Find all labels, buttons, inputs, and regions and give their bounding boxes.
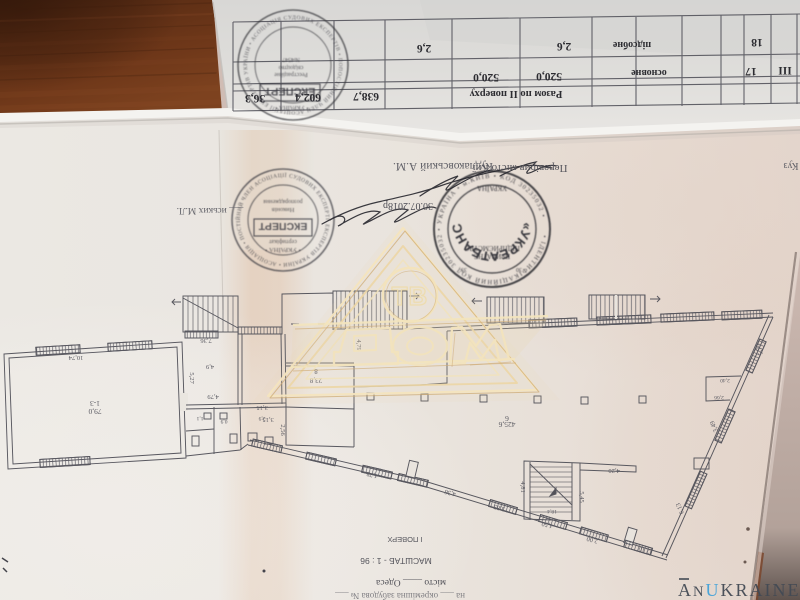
svg-text:4,20: 4,20 bbox=[608, 467, 619, 474]
svg-text:основне: основне bbox=[631, 67, 667, 78]
svg-text:4,79: 4,79 bbox=[207, 393, 218, 400]
svg-text:• УКРАЇНА •: • УКРАЇНА • bbox=[275, 104, 308, 111]
svg-text:Перевірив місто Киї: Перевірив місто Киї bbox=[472, 162, 568, 174]
svg-text:ПІДПРИЄМСТВО: ПІДПРИЄМСТВО bbox=[464, 244, 520, 252]
svg-text:2,9: 2,9 bbox=[258, 415, 265, 421]
svg-text:2,6: 2,6 bbox=[417, 42, 432, 54]
svg-text:638,7: 638,7 bbox=[353, 90, 379, 102]
svg-text:УКРАЇНА: УКРАЇНА bbox=[477, 184, 507, 192]
svg-text:підсобне: підсобне bbox=[612, 39, 651, 50]
svg-text:№4547: №4547 bbox=[282, 56, 300, 62]
svg-text:___ иських М.Л.: ___ иських М.Л. bbox=[177, 205, 245, 215]
svg-text:2,6: 2,6 bbox=[557, 40, 572, 52]
svg-text:7,36: 7,36 bbox=[200, 337, 212, 344]
svg-text:свідоцтво: свідоцтво bbox=[279, 64, 304, 70]
svg-text:ЕКСПЕРТ: ЕКСПЕРТ bbox=[264, 85, 315, 97]
svg-text:4,81: 4,81 bbox=[519, 481, 526, 492]
svg-text:1-3: 1-3 bbox=[90, 399, 100, 408]
svg-text:розпорядження: розпорядження bbox=[263, 198, 303, 204]
svg-text:17: 17 bbox=[745, 65, 757, 77]
svg-text:520,0: 520,0 bbox=[536, 70, 562, 82]
svg-text:1,1: 1,1 bbox=[196, 415, 203, 421]
svg-text:5,27: 5,27 bbox=[188, 372, 195, 384]
svg-text:МАСШТАБ - 1 : 96: МАСШТАБ - 1 : 96 bbox=[360, 556, 432, 566]
svg-text:2,56: 2,56 bbox=[279, 424, 286, 436]
svg-text:30.07.2018р: 30.07.2018р bbox=[383, 200, 433, 211]
svg-text:35: 35 bbox=[461, 266, 467, 272]
svg-text:III: III bbox=[778, 64, 792, 76]
svg-text:4,9: 4,9 bbox=[206, 363, 214, 370]
svg-text:5,45: 5,45 bbox=[578, 491, 585, 502]
svg-text:Куз: Куз bbox=[784, 160, 799, 171]
svg-text:ПРИВАТНЕ: ПРИВАТНЕ bbox=[474, 252, 510, 260]
svg-text:І ПОВЕРХ: І ПОВЕРХ bbox=[387, 535, 422, 544]
svg-text:30: 30 bbox=[516, 266, 522, 272]
svg-text:425,6: 425,6 bbox=[498, 420, 515, 429]
svg-text:10,74: 10,74 bbox=[68, 354, 83, 361]
svg-text:3,15: 3,15 bbox=[256, 404, 267, 411]
svg-text:ЕКСПЕРТ: ЕКСПЕРТ bbox=[258, 220, 307, 232]
svg-text:Никонів: Никонів bbox=[272, 206, 295, 213]
svg-text:місто ____ Одеса: місто ____ Одеса bbox=[375, 577, 446, 587]
svg-text:Реєстраційне: Реєстраційне bbox=[274, 71, 308, 78]
svg-text:18,4: 18,4 bbox=[547, 508, 557, 514]
svg-text:79,0: 79,0 bbox=[88, 407, 101, 416]
svg-text:2,40: 2,40 bbox=[720, 377, 730, 383]
svg-text:520,0: 520,0 bbox=[473, 71, 499, 83]
svg-text:ТВ: ТВ bbox=[392, 281, 429, 311]
svg-text:0,9: 0,9 bbox=[220, 418, 227, 424]
svg-text:• УКРАЇНА •: • УКРАЇНА • bbox=[265, 246, 301, 253]
svg-text:Разом по II поверху: Разом по II поверху bbox=[469, 88, 562, 99]
svg-text:2,66: 2,66 bbox=[714, 394, 724, 400]
svg-text:18: 18 bbox=[751, 36, 763, 48]
svg-text:на ___ окремішна забудова № __: на ___ окремішна забудова № ___ bbox=[335, 591, 465, 600]
svg-text:сертифікат: сертифікат bbox=[269, 238, 297, 245]
